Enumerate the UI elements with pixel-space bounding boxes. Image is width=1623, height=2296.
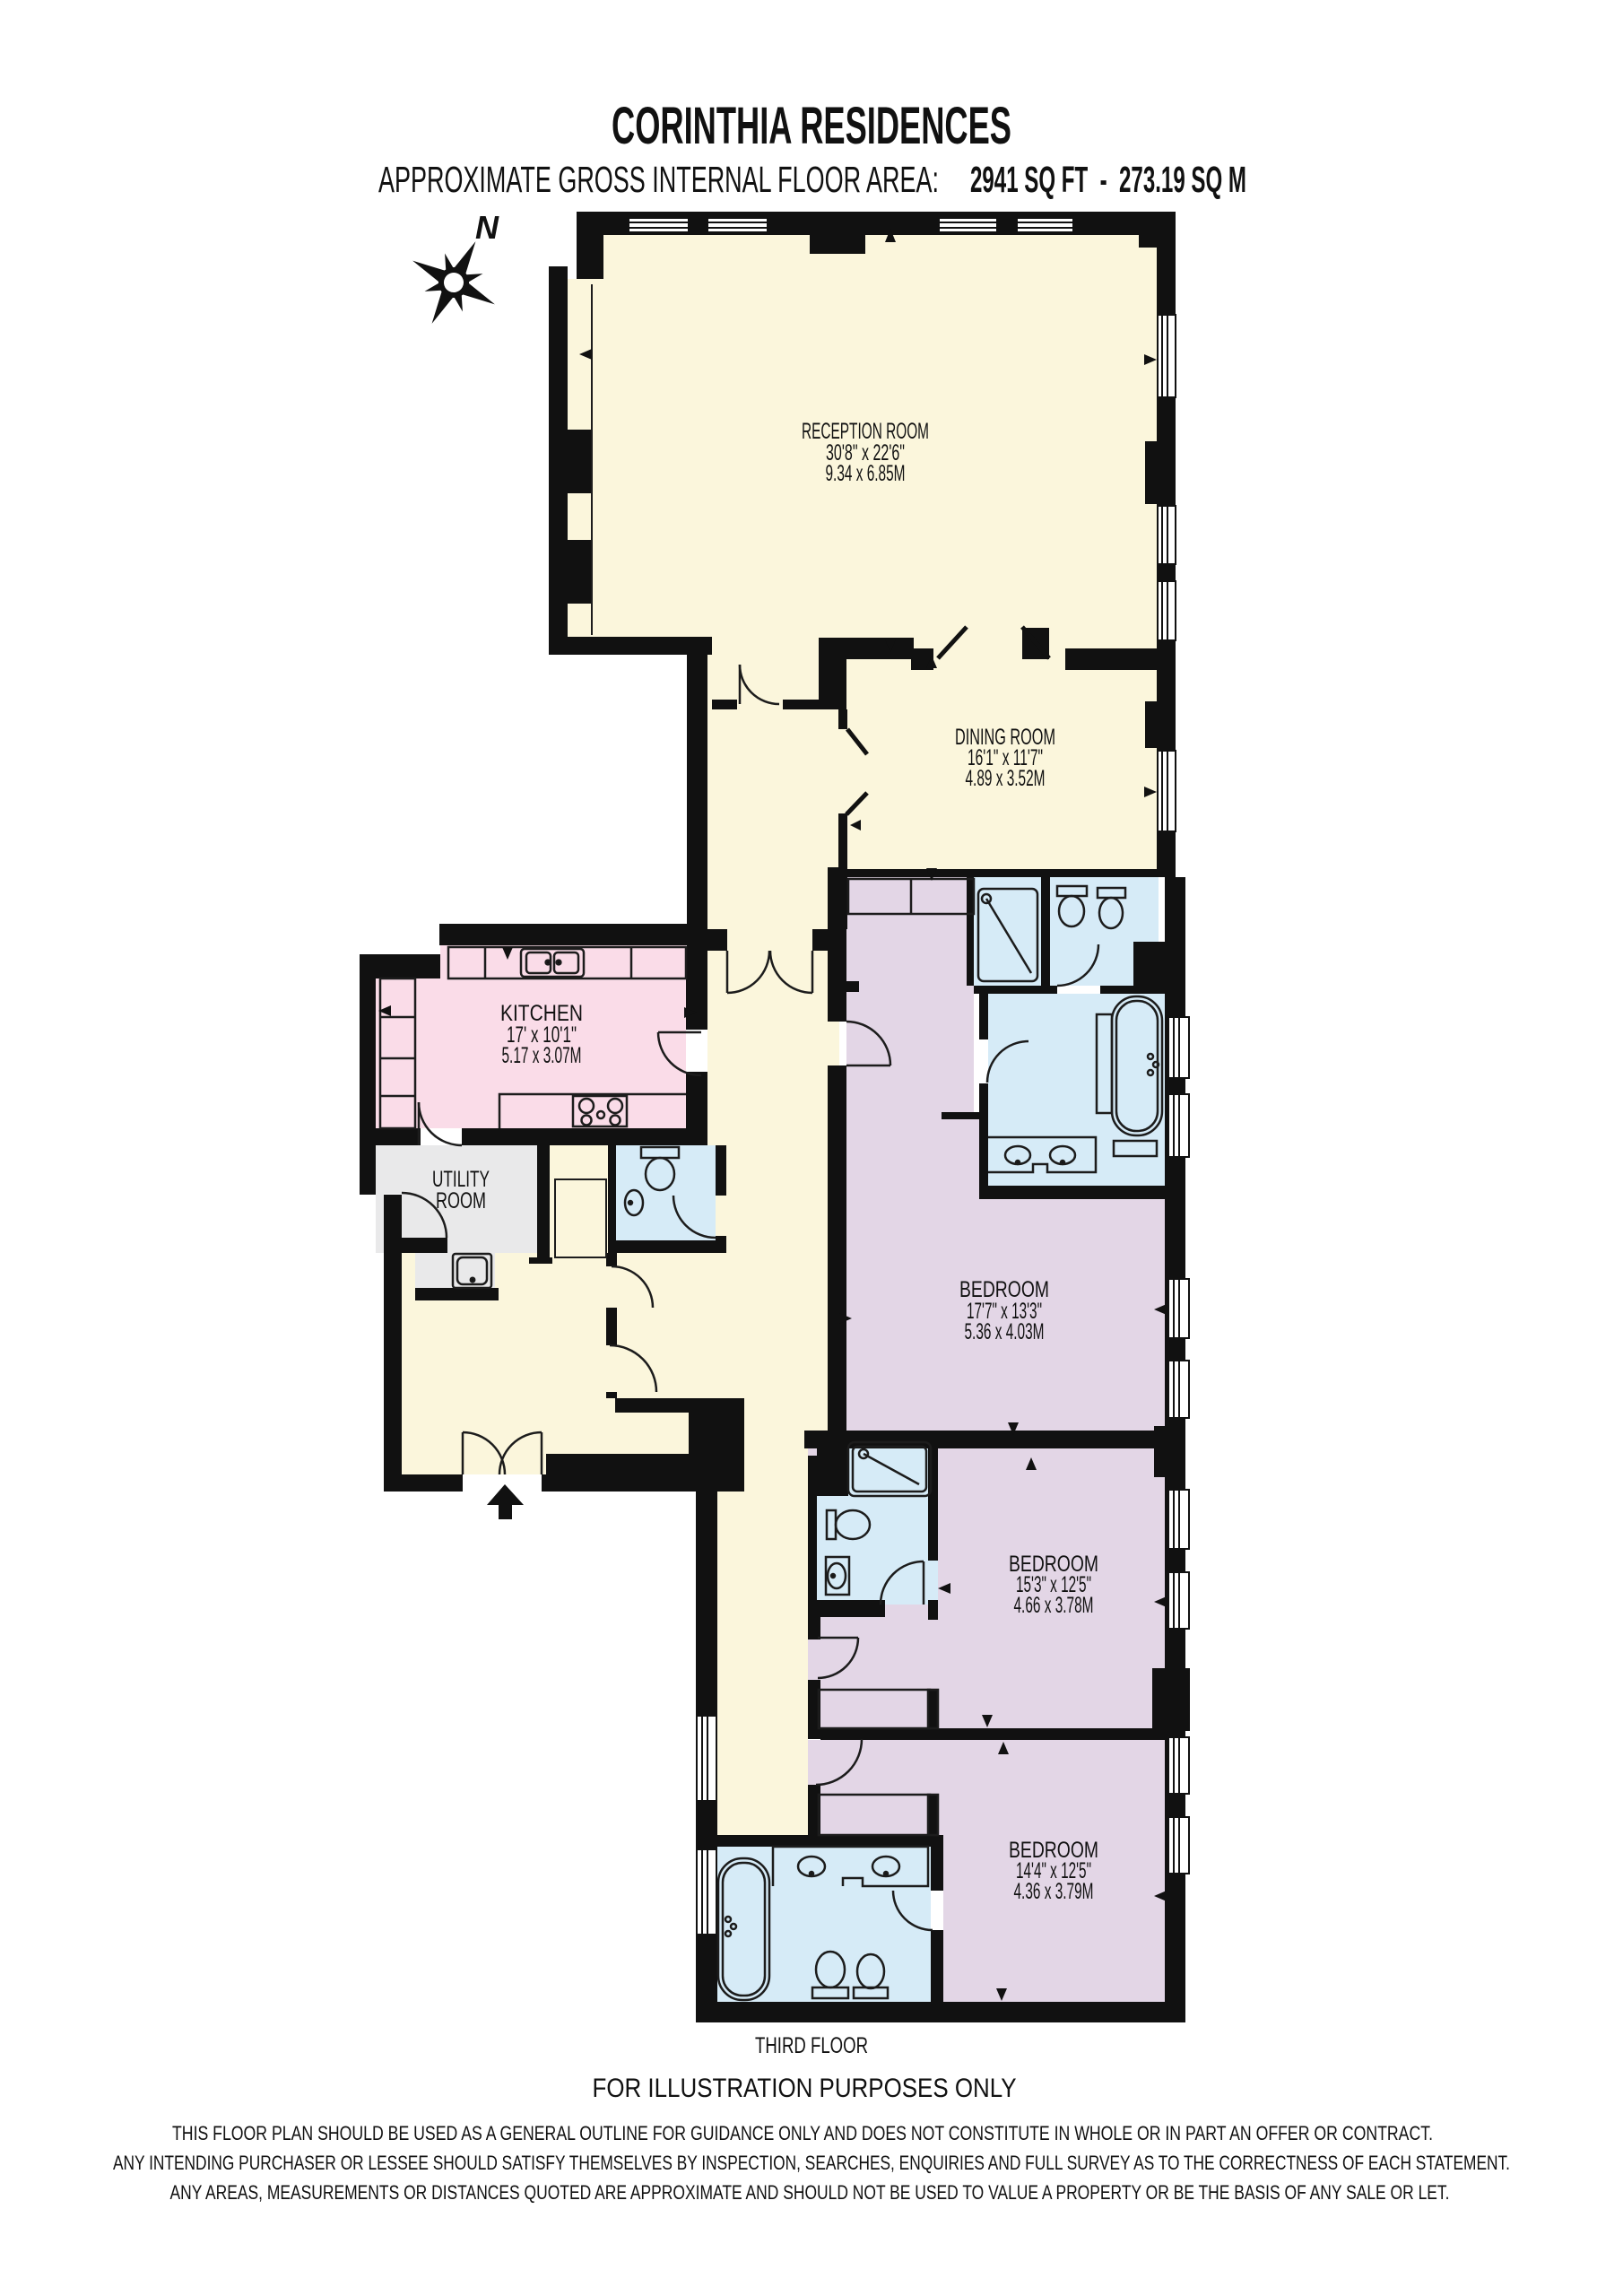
svg-text:4.66 x 3.78M: 4.66 x 3.78M — [1014, 1593, 1094, 1618]
svg-text:9.34 x 6.85M: 9.34 x 6.85M — [826, 461, 906, 486]
svg-text:ANY AREAS, MEASUREMENTS OR DIS: ANY AREAS, MEASUREMENTS OR DISTANCES QUO… — [170, 2181, 1450, 2204]
svg-text:5.36 x 4.03M: 5.36 x 4.03M — [965, 1319, 1045, 1344]
svg-text:APPROXIMATE GROSS INTERNAL FLO: APPROXIMATE GROSS INTERNAL FLOOR AREA: — [378, 159, 939, 200]
svg-text:4.36 x 3.79M: 4.36 x 3.79M — [1014, 1879, 1094, 1904]
svg-text:THIRD FLOOR: THIRD FLOOR — [755, 2033, 868, 2058]
svg-text:ANY INTENDING PURCHASER OR LES: ANY INTENDING PURCHASER OR LESSEE SHOULD… — [113, 2152, 1510, 2174]
svg-text:4.89 x 3.52M: 4.89 x 3.52M — [966, 766, 1046, 791]
svg-text:5.17 x 3.07M: 5.17 x 3.07M — [502, 1043, 582, 1068]
svg-text:FOR ILLUSTRATION PURPOSES ONLY: FOR ILLUSTRATION PURPOSES ONLY — [593, 2074, 1017, 2103]
svg-text:ROOM: ROOM — [436, 1188, 486, 1213]
svg-text:N: N — [475, 209, 499, 246]
svg-text:CORINTHIA RESIDENCES: CORINTHIA RESIDENCES — [612, 97, 1011, 155]
svg-text:THIS FLOOR PLAN SHOULD BE USED: THIS FLOOR PLAN SHOULD BE USED AS A GENE… — [172, 2122, 1433, 2144]
svg-text:2941 SQ FT - 273.19 SQ M: 2941 SQ FT - 273.19 SQ M — [970, 159, 1246, 200]
